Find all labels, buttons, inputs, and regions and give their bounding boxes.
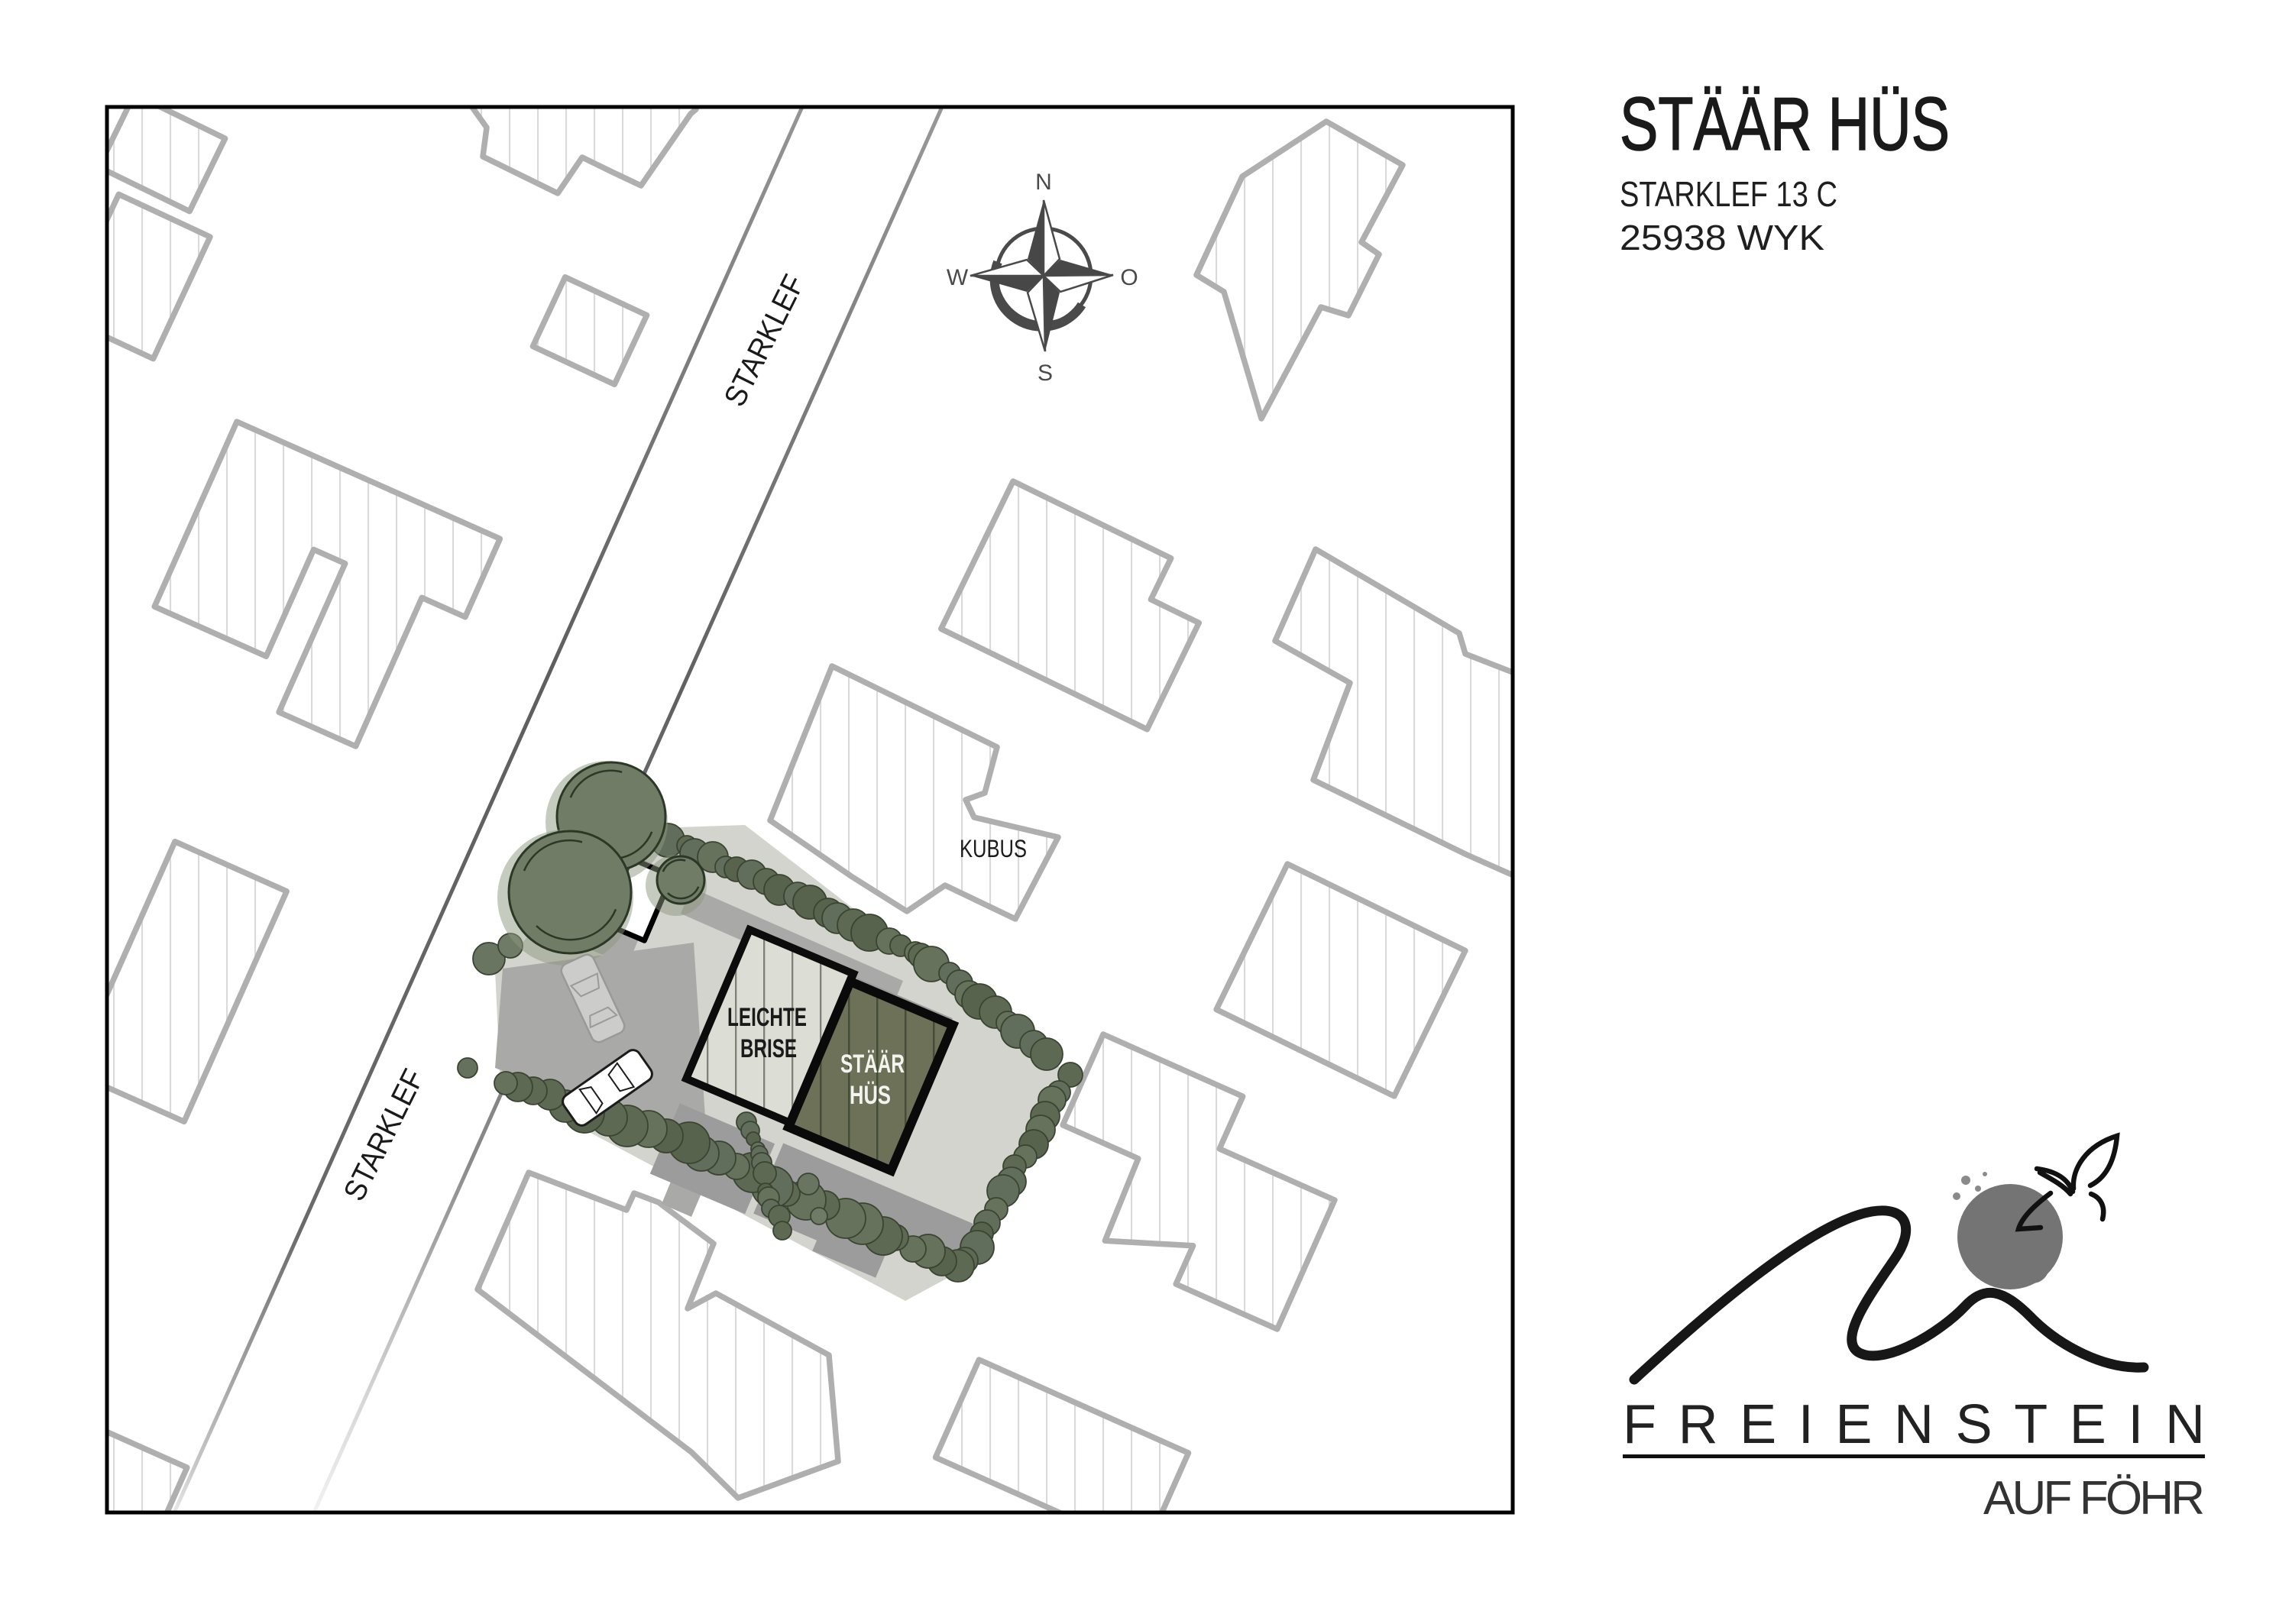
svg-text:KUBUS: KUBUS bbox=[960, 835, 1027, 862]
svg-text:N: N bbox=[1035, 170, 1052, 195]
svg-text:BRISE: BRISE bbox=[740, 1034, 797, 1063]
svg-text:STARKLEF 13 C: STARKLEF 13 C bbox=[1620, 174, 1837, 214]
svg-text:25938 WYK: 25938 WYK bbox=[1620, 218, 1824, 257]
svg-text:HÜS: HÜS bbox=[850, 1081, 891, 1110]
svg-text:S: S bbox=[1038, 361, 1053, 386]
svg-text:AUF FÖHR: AUF FÖHR bbox=[1983, 1472, 2205, 1525]
svg-text:STÄÄR HÜS: STÄÄR HÜS bbox=[1620, 82, 1950, 166]
svg-text:O: O bbox=[1120, 265, 1138, 290]
svg-text:STÄÄR: STÄÄR bbox=[840, 1050, 905, 1079]
svg-text:LEICHTE: LEICHTE bbox=[727, 1003, 807, 1032]
svg-text:W: W bbox=[947, 265, 969, 290]
svg-text:FREIENSTEIN: FREIENSTEIN bbox=[1623, 1394, 2205, 1455]
